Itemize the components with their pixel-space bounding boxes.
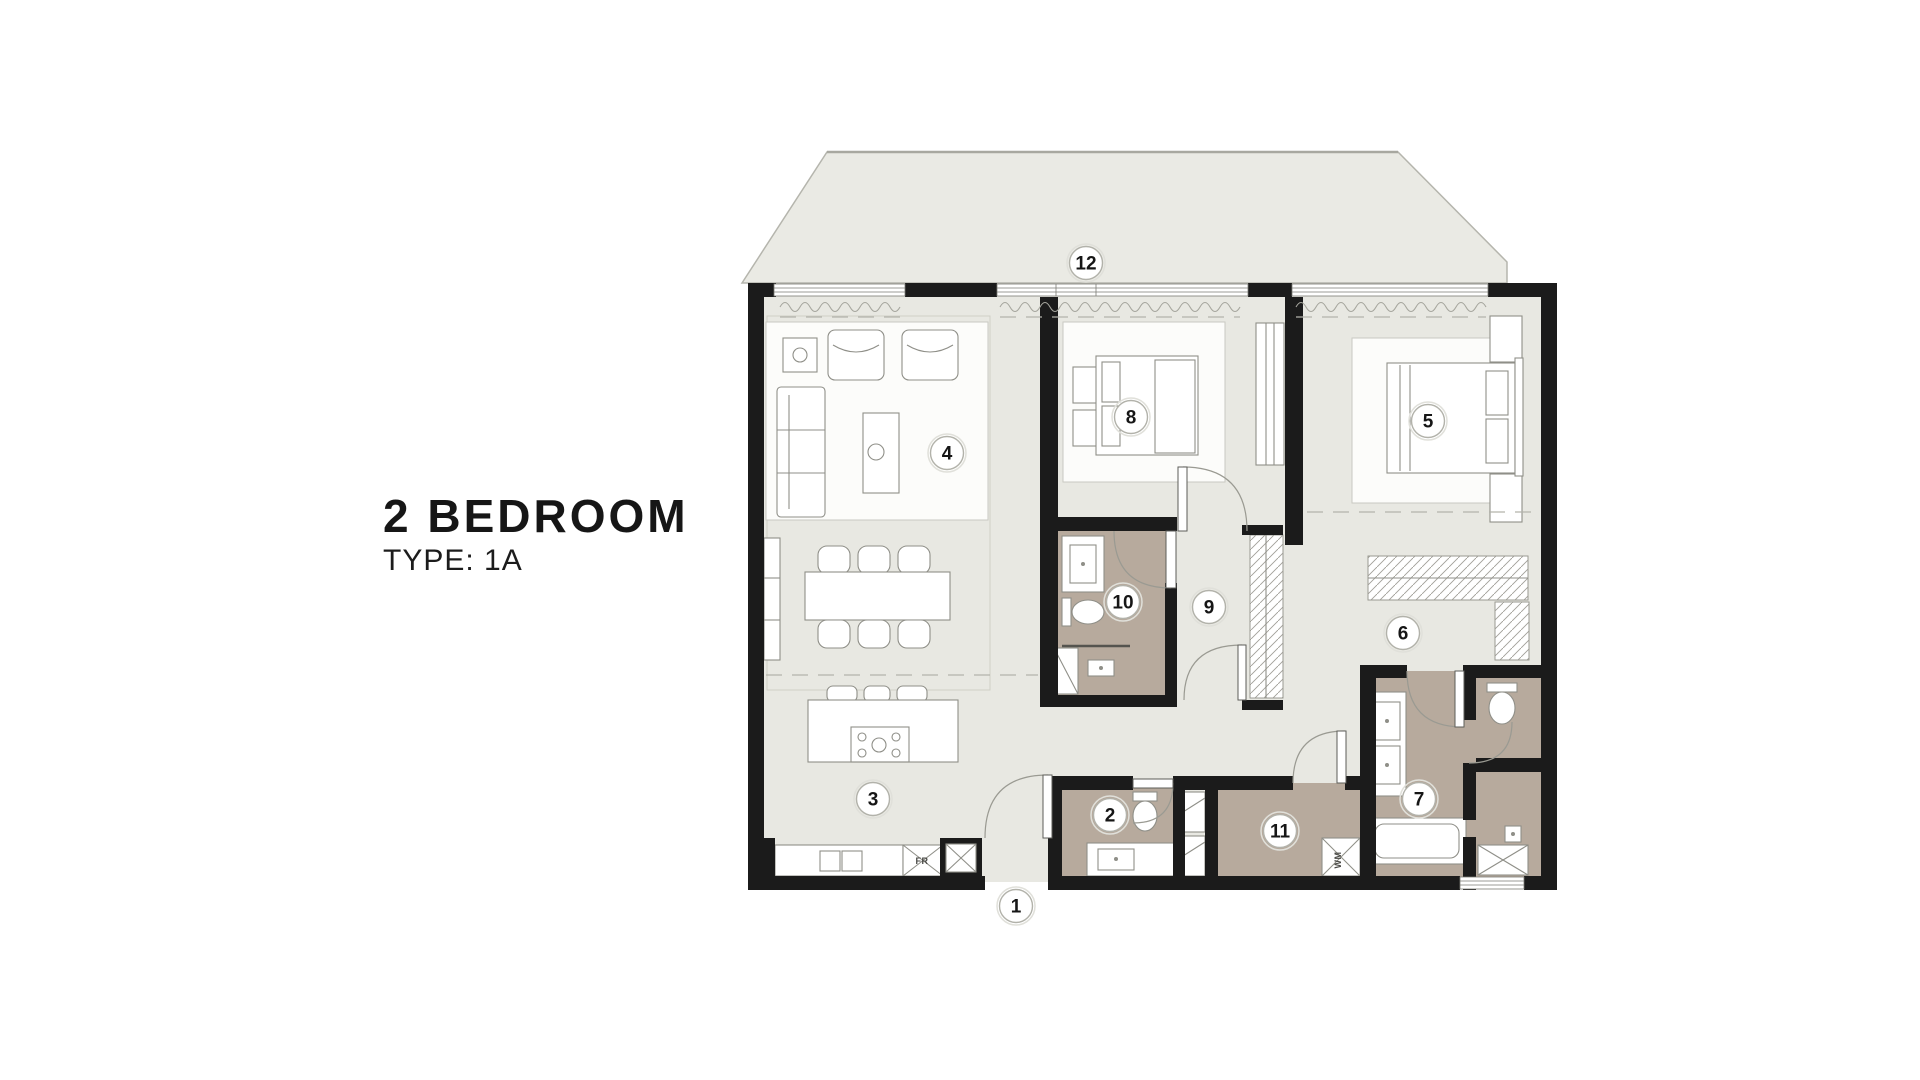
room-marker-number: 11	[1270, 822, 1291, 843]
floorplan-drawing: 123456789101112 FRWM	[0, 0, 1920, 1080]
floorplan-page: 2 BEDROOM TYPE: 1A	[0, 0, 1920, 1080]
room-marker-number: 8	[1126, 408, 1137, 429]
appliance-label: WM	[1333, 852, 1343, 869]
room-marker-number: 1	[1011, 897, 1022, 918]
room-marker-number: 12	[1075, 254, 1096, 275]
room-marker-number: 3	[868, 790, 879, 811]
room-marker-number: 4	[942, 444, 953, 465]
room-marker-number: 7	[1414, 790, 1425, 811]
room-marker-number: 2	[1105, 806, 1116, 827]
room-marker-number: 10	[1112, 593, 1133, 614]
entry-cabinet	[940, 838, 982, 878]
room-marker-number: 9	[1204, 598, 1215, 619]
floorplan: 123456789101112 FRWM	[0, 0, 1920, 1080]
balcony	[742, 152, 1507, 283]
room-marker-number: 6	[1398, 624, 1409, 645]
room-marker-number: 5	[1423, 412, 1434, 433]
appliance-label: FR	[916, 856, 929, 866]
